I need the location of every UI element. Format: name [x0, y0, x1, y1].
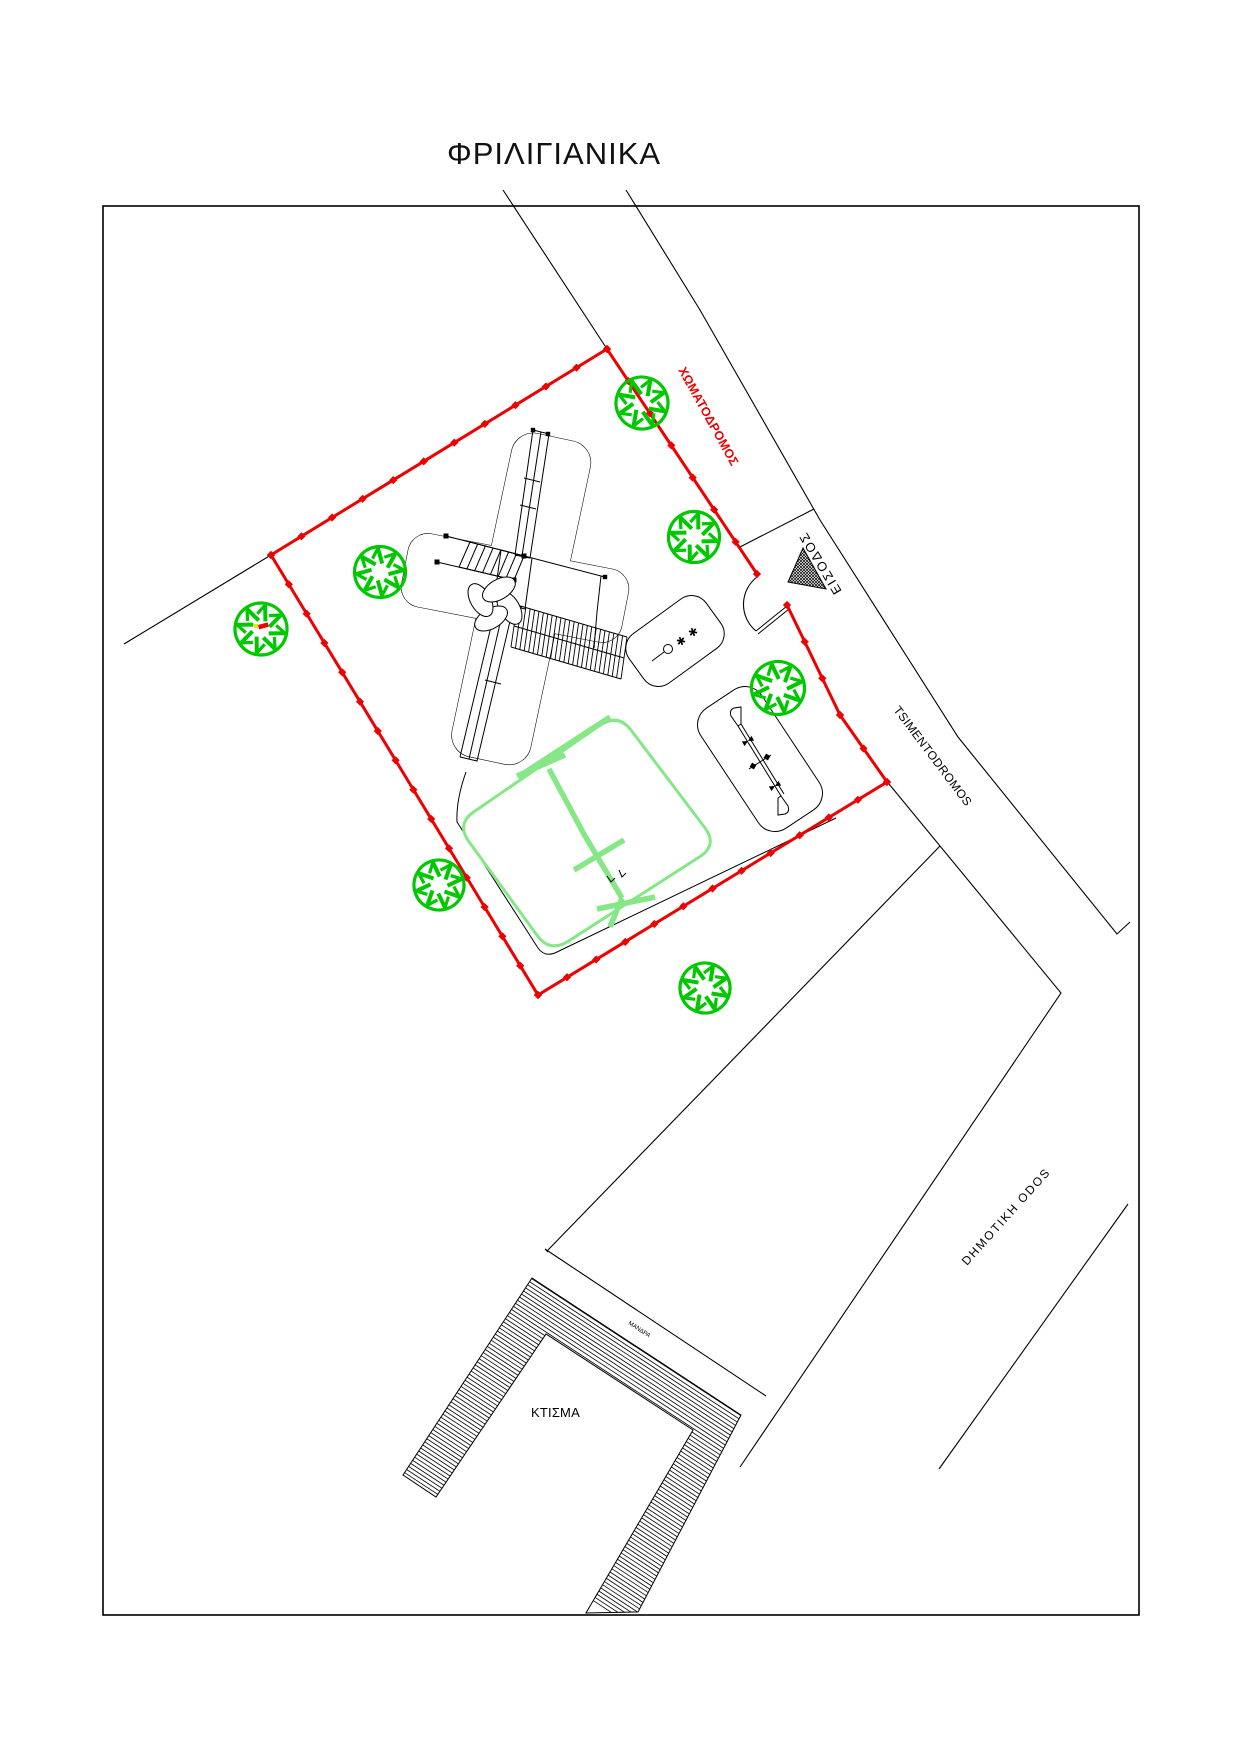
svg-text:ΚΤΙΣΜΑ: ΚΤΙΣΜΑ	[531, 1405, 580, 1420]
svg-text:ΦΡΙΛΙΓΙΑΝΙΚΑ: ΦΡΙΛΙΓΙΑΝΙΚΑ	[447, 136, 661, 171]
